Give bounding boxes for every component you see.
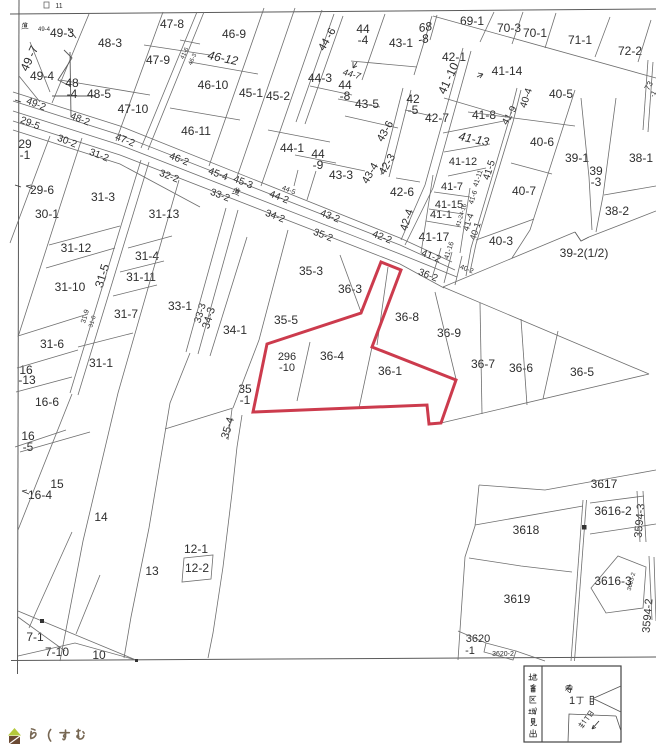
svg-text:46-10: 46-10 xyxy=(198,78,229,92)
svg-text:36-3: 36-3 xyxy=(338,282,362,296)
svg-text:42-1: 42-1 xyxy=(442,50,466,64)
svg-text:40-6: 40-6 xyxy=(530,135,554,149)
svg-text:-1: -1 xyxy=(240,393,251,407)
svg-text:70-1: 70-1 xyxy=(523,26,547,40)
svg-text:-3: -3 xyxy=(591,175,602,189)
svg-text:43-1: 43-1 xyxy=(389,36,413,50)
svg-text:-9: -9 xyxy=(313,158,324,172)
svg-text:46-11: 46-11 xyxy=(181,124,211,138)
svg-text:36-6: 36-6 xyxy=(509,361,533,375)
svg-text:43-3: 43-3 xyxy=(329,168,353,182)
svg-text:-1: -1 xyxy=(465,645,475,657)
svg-text:31-13: 31-13 xyxy=(149,207,180,221)
svg-text:49-4: 49-4 xyxy=(38,27,51,33)
svg-text:49-3: 49-3 xyxy=(50,26,74,40)
svg-text:45-1: 45-1 xyxy=(239,86,263,100)
svg-text:36-8: 36-8 xyxy=(395,310,419,324)
svg-text:49-4: 49-4 xyxy=(30,69,54,83)
svg-text:36-4: 36-4 xyxy=(320,349,344,363)
svg-text:69-1: 69-1 xyxy=(460,14,484,28)
svg-text:40-5: 40-5 xyxy=(549,87,573,101)
svg-text:-10: -10 xyxy=(279,362,295,374)
svg-text:42-6: 42-6 xyxy=(390,185,414,199)
svg-text:29-6: 29-6 xyxy=(30,183,54,197)
svg-text:-5: -5 xyxy=(408,103,419,117)
svg-text:13: 13 xyxy=(145,564,159,578)
svg-text:-5: -5 xyxy=(23,440,34,454)
svg-text:31-6: 31-6 xyxy=(40,337,64,351)
svg-text:47-10: 47-10 xyxy=(118,102,149,116)
svg-text:31-10: 31-10 xyxy=(55,280,86,294)
svg-text:71-1: 71-1 xyxy=(568,33,592,47)
svg-text:3619: 3619 xyxy=(504,592,531,606)
svg-text:3618: 3618 xyxy=(513,523,540,537)
svg-text:-4: -4 xyxy=(67,87,78,101)
svg-text:44-3: 44-3 xyxy=(308,71,332,85)
svg-text:40-7: 40-7 xyxy=(512,184,536,198)
svg-text:3616-3: 3616-3 xyxy=(594,574,632,588)
svg-text:16-6: 16-6 xyxy=(35,395,59,409)
svg-text:40-3: 40-3 xyxy=(489,234,513,248)
svg-text:1: 1 xyxy=(569,695,575,707)
svg-text:48-3: 48-3 xyxy=(98,36,122,50)
svg-text:36-1: 36-1 xyxy=(378,364,402,378)
svg-text:47-9: 47-9 xyxy=(146,53,170,67)
svg-text:44-1: 44-1 xyxy=(280,141,304,155)
svg-text:41-7: 41-7 xyxy=(441,181,463,193)
svg-text:15: 15 xyxy=(50,477,64,491)
svg-text:31-3: 31-3 xyxy=(91,190,115,204)
svg-text:3616-2: 3616-2 xyxy=(594,504,632,518)
svg-text:39-2(1/2): 39-2(1/2) xyxy=(560,246,609,260)
svg-text:31-11: 31-11 xyxy=(126,270,156,284)
svg-text:41-14: 41-14 xyxy=(492,64,523,78)
svg-text:72-2: 72-2 xyxy=(618,44,642,58)
svg-text:48-5: 48-5 xyxy=(87,87,111,101)
svg-text:12-2: 12-2 xyxy=(185,561,209,575)
svg-text:45-2: 45-2 xyxy=(266,89,290,103)
svg-text:12-1: 12-1 xyxy=(184,542,208,556)
svg-text:42-7: 42-7 xyxy=(425,111,449,125)
svg-text:38-1: 38-1 xyxy=(629,151,653,165)
svg-text:33-1: 33-1 xyxy=(168,299,192,313)
svg-text:41-12: 41-12 xyxy=(449,156,477,168)
svg-text:34-1: 34-1 xyxy=(223,323,247,337)
svg-text:36-5: 36-5 xyxy=(570,365,594,379)
svg-text:-13: -13 xyxy=(18,373,36,387)
svg-text:7-1: 7-1 xyxy=(26,630,44,644)
svg-text:35-5: 35-5 xyxy=(274,313,298,327)
svg-text:38-2: 38-2 xyxy=(605,204,629,218)
svg-text:35-3: 35-3 xyxy=(299,264,323,278)
svg-text:39-1: 39-1 xyxy=(565,151,589,165)
svg-text:46-9: 46-9 xyxy=(222,27,246,41)
svg-text:36-7: 36-7 xyxy=(471,357,495,371)
svg-text:47-8: 47-8 xyxy=(160,17,184,31)
svg-text:31-12: 31-12 xyxy=(61,241,92,255)
svg-text:-8: -8 xyxy=(340,89,351,103)
svg-text:-1: -1 xyxy=(20,148,31,162)
svg-text:43-5: 43-5 xyxy=(355,97,379,111)
svg-text:11: 11 xyxy=(55,3,62,10)
svg-text:31-1: 31-1 xyxy=(89,356,113,370)
svg-text:31-7: 31-7 xyxy=(114,307,138,321)
svg-text:36-9: 36-9 xyxy=(437,326,461,340)
svg-text:-4: -4 xyxy=(358,33,369,47)
svg-text:14: 14 xyxy=(94,510,108,524)
